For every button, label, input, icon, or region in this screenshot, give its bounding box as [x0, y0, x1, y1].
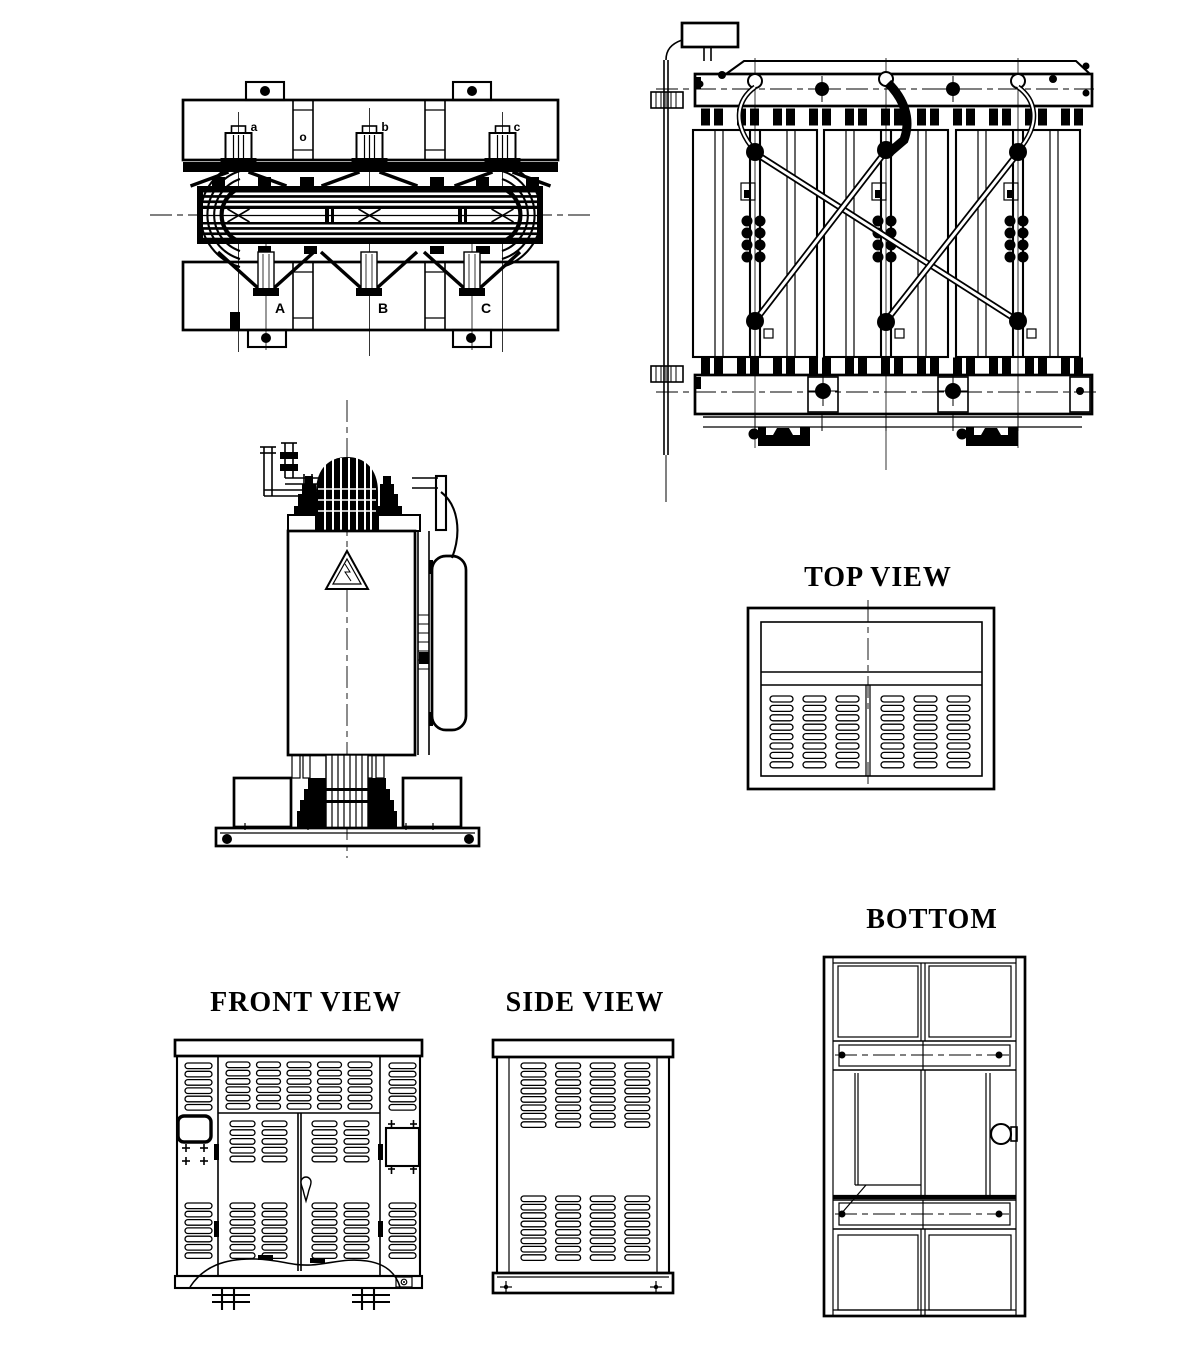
louver-grid: [881, 696, 970, 768]
bushing-label-b: b: [381, 120, 388, 134]
side-view-core-coil-assembly: [216, 400, 479, 858]
top-cap: [493, 1040, 673, 1057]
hinge: [378, 1221, 383, 1237]
terminal-plate: [386, 1120, 419, 1174]
enclosure-side-view: SIDE VIEW: [493, 987, 673, 1293]
base-rail: [493, 1273, 673, 1293]
top-cap: [175, 1040, 422, 1056]
louver-grid: [770, 696, 859, 768]
top-yoke-and-winding-end: [288, 457, 457, 558]
bushing-label-a: a: [251, 120, 258, 134]
base-rail: [175, 1276, 422, 1288]
hinge: [214, 1221, 219, 1237]
cross-brace-rods: [746, 141, 1027, 331]
phase-label-C: C: [481, 300, 491, 316]
bottom-yoke-and-base: [216, 755, 479, 846]
plan-view-core-coil-assembly: a o b c: [150, 82, 592, 356]
leveling-legs: [212, 1288, 390, 1310]
drawing-sheet: a o b c: [0, 0, 1200, 1361]
core-band: [197, 186, 543, 244]
lv-stem-B: [321, 252, 417, 296]
base-rails-and-feet: [703, 414, 1082, 446]
indicator-marks: [182, 1144, 208, 1165]
bottom-clamping-frame: [656, 375, 1098, 414]
bushing-label-c: c: [514, 120, 521, 134]
enclosure-front-view: FRONT VIEW: [175, 987, 422, 1310]
hinge: [378, 1144, 383, 1160]
ground-cable: [441, 492, 457, 558]
phase-label-A: A: [275, 300, 285, 316]
conduit-riser: [651, 60, 683, 502]
hinge: [214, 1144, 219, 1160]
base-plate: [216, 828, 479, 846]
upper-cross-rail: [833, 1041, 1016, 1070]
title-front-view: FRONT VIEW: [210, 987, 402, 1018]
front-view-core-coil-assembly: [651, 23, 1098, 502]
title-side-view: SIDE VIEW: [506, 987, 665, 1018]
inspection-window: [178, 1116, 211, 1142]
anchor-bolt-marks: [500, 1281, 662, 1293]
middle-recess: [841, 1070, 1017, 1214]
terminal-cluster: [742, 216, 766, 263]
clamp-foot: [966, 427, 1018, 446]
lower-cross-rail: [833, 1200, 1016, 1229]
enclosure-top-view: TOP VIEW: [748, 562, 994, 789]
louver-grid: [521, 1063, 650, 1127]
title-bottom: BOTTOM: [866, 904, 998, 935]
coil-body: [288, 531, 466, 755]
terminal-junction-box: [666, 23, 738, 61]
louver-grid: [521, 1196, 650, 1260]
side-bracket: [432, 556, 466, 730]
lv-stem-A: [218, 252, 314, 296]
terminal-cluster: [1005, 216, 1029, 263]
clamp-foot: [758, 427, 810, 446]
transformer-engineering-drawing: a o b c: [0, 0, 1200, 1361]
door-knob: [991, 1124, 1011, 1144]
title-top-view: TOP VIEW: [804, 562, 952, 593]
louver-grid: [185, 1063, 212, 1110]
warning-triangle: [326, 551, 368, 589]
cable-skirt: [190, 1259, 400, 1287]
phase-label-B: B: [378, 300, 388, 316]
enclosure-bottom-view: BOTTOM: [824, 904, 1025, 1316]
door-handle: [301, 1177, 311, 1201]
neutral-label-o: o: [299, 130, 306, 144]
